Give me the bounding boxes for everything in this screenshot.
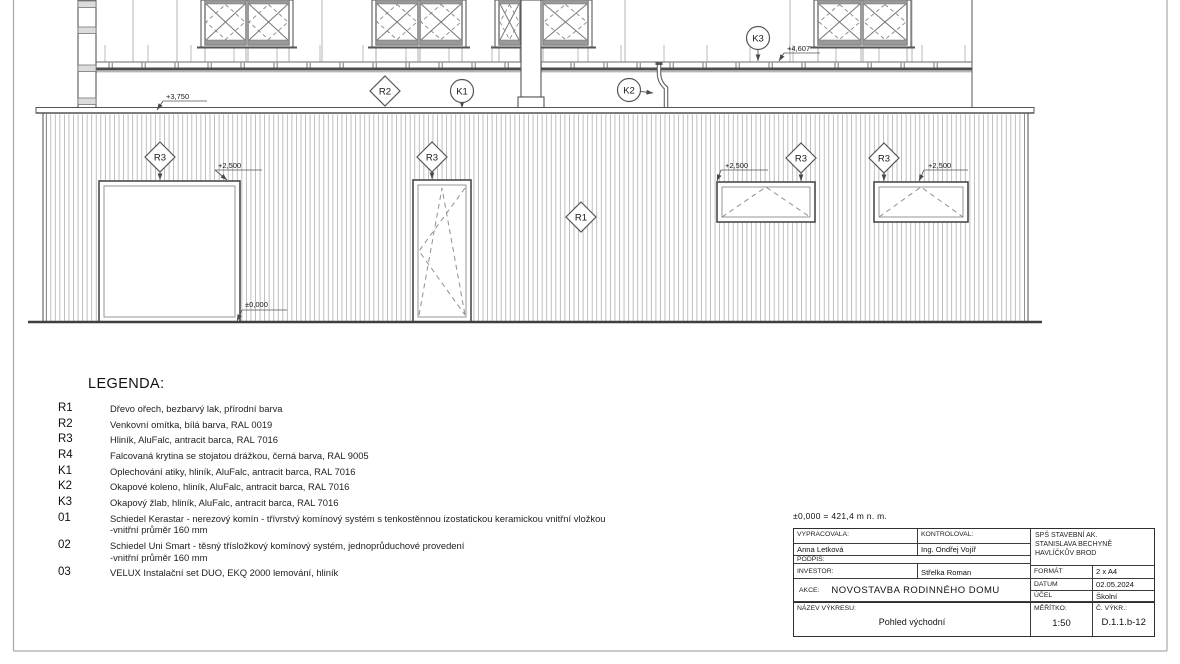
legend-item: 03VELUX Instalační set DUO, EKQ 2000 lem… — [58, 567, 782, 579]
attic-coping — [36, 108, 1034, 114]
marker-label: R3 — [154, 152, 166, 163]
tb-purpose-value-text: Školní — [1093, 591, 1154, 601]
sash-bottom-bar — [543, 40, 588, 45]
legend-item-code: R3 — [58, 434, 110, 446]
downpipe-bracket — [656, 62, 663, 65]
stainless-chimney-01 — [78, 0, 96, 108]
tb-school: SPŠ STAVEBNÍ AK. STANISLAVA BECHYNĚ HAVL… — [1031, 529, 1154, 566]
arrowhead-icon — [158, 174, 163, 181]
legend-item-text: Schiedel Kerastar - nerezový komín - tří… — [110, 513, 606, 536]
tb-investor-label: INVESTOR: — [794, 564, 918, 579]
legend-item: K3Okapový žlab, hliník, AluFalc, antraci… — [58, 497, 782, 509]
tb-project-label: AKCE: — [794, 587, 819, 594]
legend-item: K2Okapové koleno, hliník, AluFalc, antra… — [58, 481, 782, 493]
arrowhead-icon — [715, 174, 722, 182]
legend-item-code: R2 — [58, 419, 110, 431]
marker-label: R2 — [379, 86, 391, 97]
legend-item-code: R4 — [58, 450, 110, 462]
tb-drawing-number: Č. VÝKR.: D.1.1.b-12 — [1093, 602, 1154, 636]
legend-item-code: K3 — [58, 497, 110, 509]
chimney-clamp-band — [78, 65, 96, 72]
legend-item-code: K2 — [58, 481, 110, 493]
tb-project-name: NOVOSTAVBA RODINNÉHO DOMU — [819, 585, 999, 596]
chimney-clamp-band — [78, 1, 96, 8]
tb-drawing-number-value: D.1.1.b-12 — [1093, 617, 1154, 628]
legend-item: R2Venkovní omítka, bílá barva, RAL 0019 — [58, 419, 782, 431]
tb-format-value-text: 2 x A4 — [1093, 566, 1154, 576]
tb-purpose-value: Školní — [1093, 591, 1154, 602]
tb-investor-label-text: INVESTOR: — [794, 564, 917, 575]
sash-bottom-bar — [818, 40, 861, 45]
tb-date-value: 02.05.2024 — [1093, 579, 1154, 591]
tb-checker-value: Ing. Ondřej Vojíř — [918, 544, 1031, 556]
tb-checker-label: KONTROLOVAL: — [918, 529, 1031, 544]
level-label: +2,500 — [725, 161, 748, 170]
tb-investor-name: Střelka Roman — [918, 564, 1030, 577]
tb-scale-label: MĚŘÍTKO: — [1031, 603, 1092, 612]
marker-label: R1 — [575, 212, 587, 223]
tb-drawing-name-value: Pohled východní — [794, 617, 1030, 627]
tb-project: AKCE: NOVOSTAVBA RODINNÉHO DOMU — [794, 579, 1031, 602]
legend-item-text: Schiedel Uni Smart - těsný třísložkový k… — [110, 540, 464, 563]
tb-author-label-text: VYPRACOVALA: — [794, 529, 917, 538]
tb-author-name: Anna Letková — [794, 544, 917, 554]
sash-bottom-bar — [376, 40, 418, 45]
marker-label: R3 — [878, 153, 890, 164]
legend-item: K1Oplechování atiky, hliník, AluFalc, an… — [58, 466, 782, 478]
garage-door — [99, 181, 240, 322]
tb-signature: PODPIS: — [794, 556, 1031, 564]
marker-label: K1 — [456, 86, 468, 97]
legend-item-text: Venkovní omítka, bílá barva, RAL 0019 — [110, 419, 272, 431]
marker-label: K2 — [623, 85, 635, 96]
tb-date-value-text: 02.05.2024 — [1093, 579, 1154, 589]
tb-scale-value: 1:50 — [1031, 618, 1092, 629]
sash-bottom-bar — [499, 40, 520, 45]
tb-checker-name: Ing. Ondřej Vojíř — [918, 544, 1030, 554]
legend-title: LEGENDA: — [88, 376, 782, 392]
tb-drawing-name-label: NÁZEV VÝKRESU: — [794, 603, 1030, 612]
tilt-window — [874, 182, 968, 222]
sash-bottom-bar — [205, 40, 246, 45]
chimney-clamp-band — [78, 27, 96, 34]
sash-top-bar — [205, 0, 246, 4]
tb-checker-label-text: KONTROLOVAL: — [918, 529, 1030, 538]
tb-scale: MĚŘÍTKO: 1:50 — [1031, 602, 1093, 636]
arrowhead-icon — [882, 175, 887, 182]
marker-label: R3 — [795, 153, 807, 164]
marker-label: K3 — [752, 33, 764, 44]
legend: LEGENDA: R1Dřevo ořech, bezbarvý lak, př… — [58, 376, 782, 583]
legend-item-text: Falcovaná krytina se stojatou drážkou, č… — [110, 450, 369, 462]
tb-purpose-label: ÚČEL — [1031, 591, 1093, 602]
legend-rows: R1Dřevo ořech, bezbarvý lak, přírodní ba… — [58, 403, 782, 579]
legend-item: 01Schiedel Kerastar - nerezový komín - t… — [58, 513, 782, 536]
legend-item-code: 02 — [58, 540, 110, 563]
legend-item-code: 01 — [58, 513, 110, 536]
tb-author-value: Anna Letková — [794, 544, 918, 556]
legend-item: R1Dřevo ořech, bezbarvý lak, přírodní ba… — [58, 403, 782, 415]
level-label: +3,750 — [166, 92, 189, 101]
marker-label: R3 — [426, 152, 438, 163]
level-label: +4,607 — [787, 44, 810, 53]
legend-item-text: Hliník, AluFalc, antracit barca, RAL 701… — [110, 434, 278, 446]
legend-item-text: VELUX Instalační set DUO, EKQ 2000 lemov… — [110, 567, 338, 579]
title-block: VYPRACOVALA: KONTROLOVAL: Anna Letková I… — [793, 528, 1155, 637]
sash-top-bar — [376, 0, 418, 4]
legend-item: 02Schiedel Uni Smart - těsný třísložkový… — [58, 540, 782, 563]
sash-top-bar — [420, 0, 462, 4]
tb-investor-value: Střelka Roman — [918, 564, 1031, 579]
chimney-02-shaft — [521, 0, 541, 97]
chimney-02-base — [518, 97, 544, 108]
tb-format-label: FORMÁT — [1031, 566, 1093, 579]
tb-purpose-label-text: ÚČEL — [1031, 591, 1092, 599]
sash-bottom-bar — [863, 40, 907, 45]
arrowhead-icon — [917, 174, 924, 182]
tb-format-value: 2 x A4 — [1093, 566, 1154, 579]
tb-drawing-number-label: Č. VÝKR.: — [1093, 603, 1154, 612]
legend-item-code: K1 — [58, 466, 110, 478]
sash-top-bar — [499, 0, 520, 4]
legend-item-text: Oplechování atiky, hliník, AluFalc, antr… — [110, 466, 355, 478]
sash-bottom-bar — [420, 40, 462, 45]
arrowhead-icon — [799, 175, 804, 182]
level-label: ±0,000 — [245, 300, 268, 309]
drawing-sheet: +3,750+4,607+2,500+2,500+2,500±0,000R2K1… — [0, 0, 1180, 664]
tb-date-label: DATUM — [1031, 579, 1093, 591]
sash-top-bar — [248, 0, 289, 4]
sash-bottom-bar — [248, 40, 289, 45]
sash-top-bar — [863, 0, 907, 4]
sash-top-bar — [818, 0, 861, 4]
legend-item-code: 03 — [58, 567, 110, 579]
legend-item: R4Falcovaná krytina se stojatou drážkou,… — [58, 450, 782, 462]
chimney-clamp-band — [78, 98, 96, 105]
tb-drawing-name: NÁZEV VÝKRESU: Pohled východní — [794, 602, 1031, 636]
arrowhead-icon — [430, 173, 435, 180]
legend-item-text: Okapové koleno, hliník, AluFalc, antraci… — [110, 481, 349, 493]
legend-item-text: Dřevo ořech, bezbarvý lak, přírodní barv… — [110, 403, 282, 415]
sash-top-bar — [543, 0, 588, 4]
datum-note: ±0,000 = 421,4 m n. m. — [793, 511, 887, 521]
legend-item-code: R1 — [58, 403, 110, 415]
level-label: +2,500 — [218, 161, 241, 170]
legend-item: R3Hliník, AluFalc, antracit barca, RAL 7… — [58, 434, 782, 446]
level-label: +2,500 — [928, 161, 951, 170]
tilt-window — [717, 182, 815, 222]
tb-format-label-text: FORMÁT — [1031, 566, 1092, 575]
tb-author-label: VYPRACOVALA: — [794, 529, 918, 544]
tb-school-name: SPŠ STAVEBNÍ AK. STANISLAVA BECHYNĚ HAVL… — [1031, 529, 1154, 558]
legend-item-text: Okapový žlab, hliník, AluFalc, antracit … — [110, 497, 338, 509]
tb-date-label-text: DATUM — [1031, 579, 1092, 588]
tb-signature-label: PODPIS: — [794, 556, 1030, 563]
